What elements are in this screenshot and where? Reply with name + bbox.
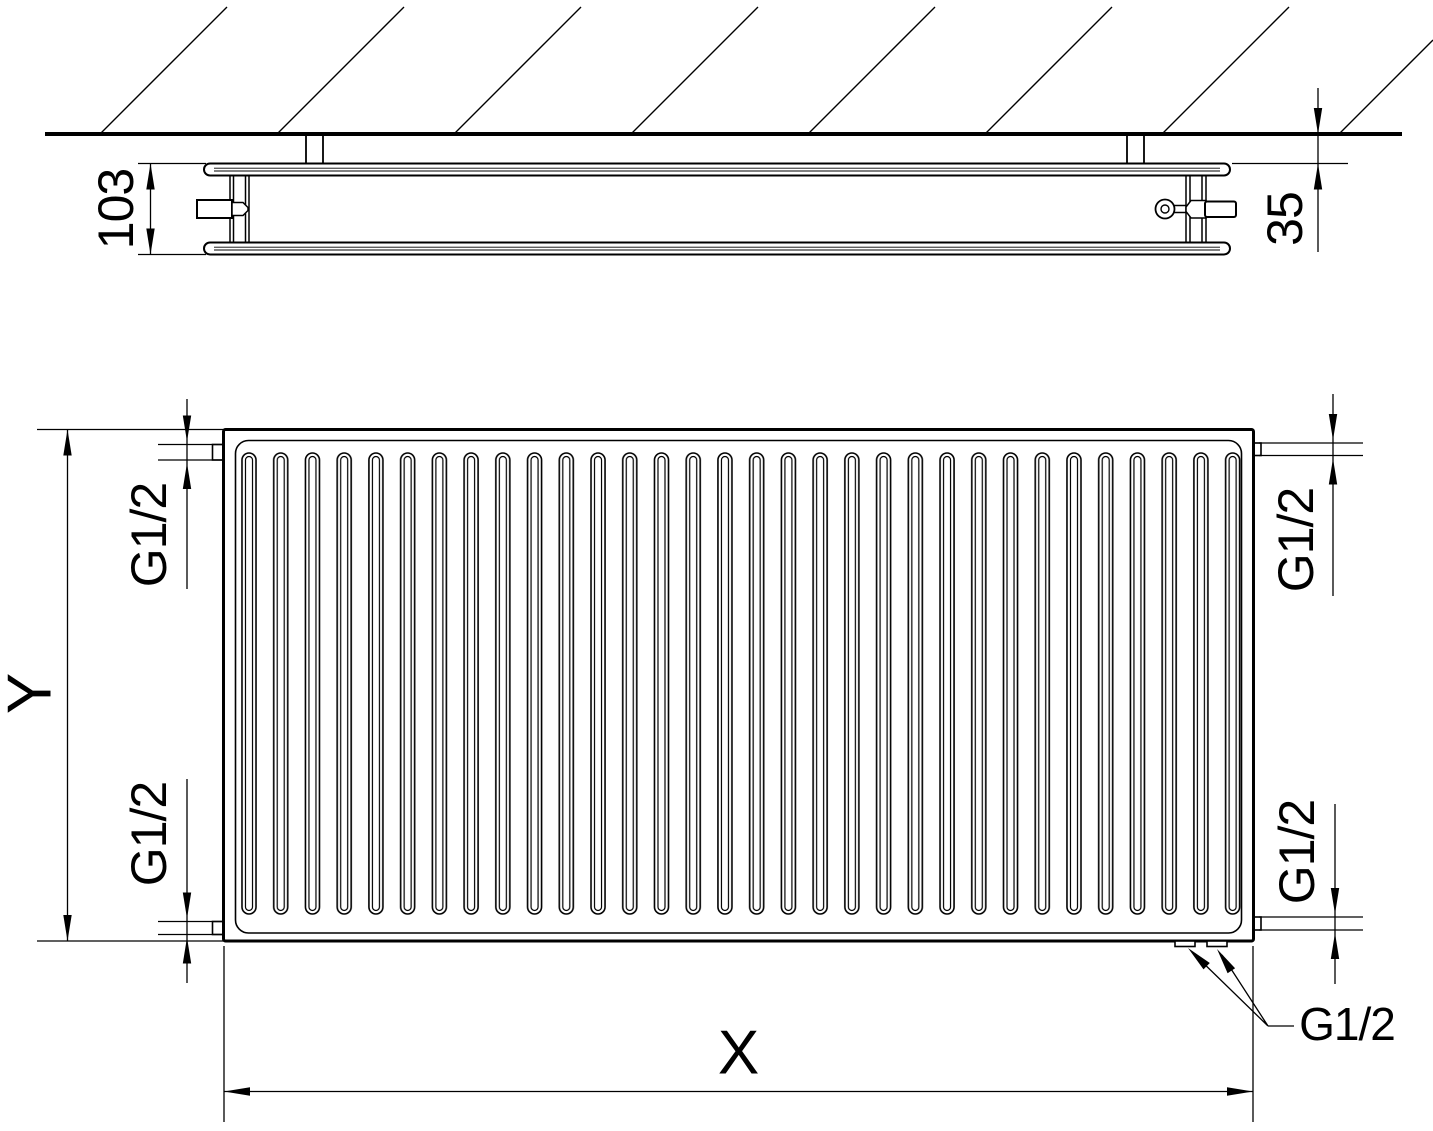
dimension-width: X [224,946,1253,1122]
wall-hatching-lines [100,7,1433,134]
right-plug [1205,202,1236,218]
dimension-g12-top-right: G1/2 [1259,394,1363,596]
g12-bottom-left-label: G1/2 [121,782,177,886]
bottom-connections-label: G1/2 [1299,998,1395,1050]
wall-bracket-right [1127,136,1144,165]
top-view: 103 35 [45,7,1433,255]
wall-bracket-left [306,136,323,165]
dimension-wall-distance: 35 [1232,88,1348,252]
left-plug-nut [232,203,248,216]
front-view: Y X G1/2 G1/2 [0,394,1395,1122]
g12-bottom-right-label: G1/2 [1269,800,1325,904]
dimension-g12-bottom-right: G1/2 [1259,800,1363,984]
dimension-depth: 103 [88,164,206,255]
bottom-connection-tab-1 [1175,941,1195,947]
dimension-g12-top-left: G1/2 [121,399,224,589]
radiator-front-panel [204,243,1230,255]
right-plug-nut [1186,201,1206,219]
dimension-g12-bottom-left: G1/2 [121,779,224,983]
bottom-connections-callout: G1/2 [1188,948,1395,1050]
g12-top-left-label: G1/2 [121,483,177,587]
radiator-technical-drawing: 103 35 Y [0,0,1433,1131]
air-vent-icon [1156,200,1175,219]
width-label: X [718,1019,759,1088]
radiator-back-panel [204,164,1230,176]
dimension-height: Y [0,430,224,942]
radiator-channels [238,452,1242,916]
depth-label: 103 [88,169,144,249]
g12-top-right-label: G1/2 [1268,488,1324,592]
height-label: Y [0,674,65,714]
air-vent-stem [1174,206,1186,213]
wall-distance-label: 35 [1257,192,1313,246]
bottom-connection-tab-2 [1207,941,1227,947]
left-plug [197,200,232,218]
